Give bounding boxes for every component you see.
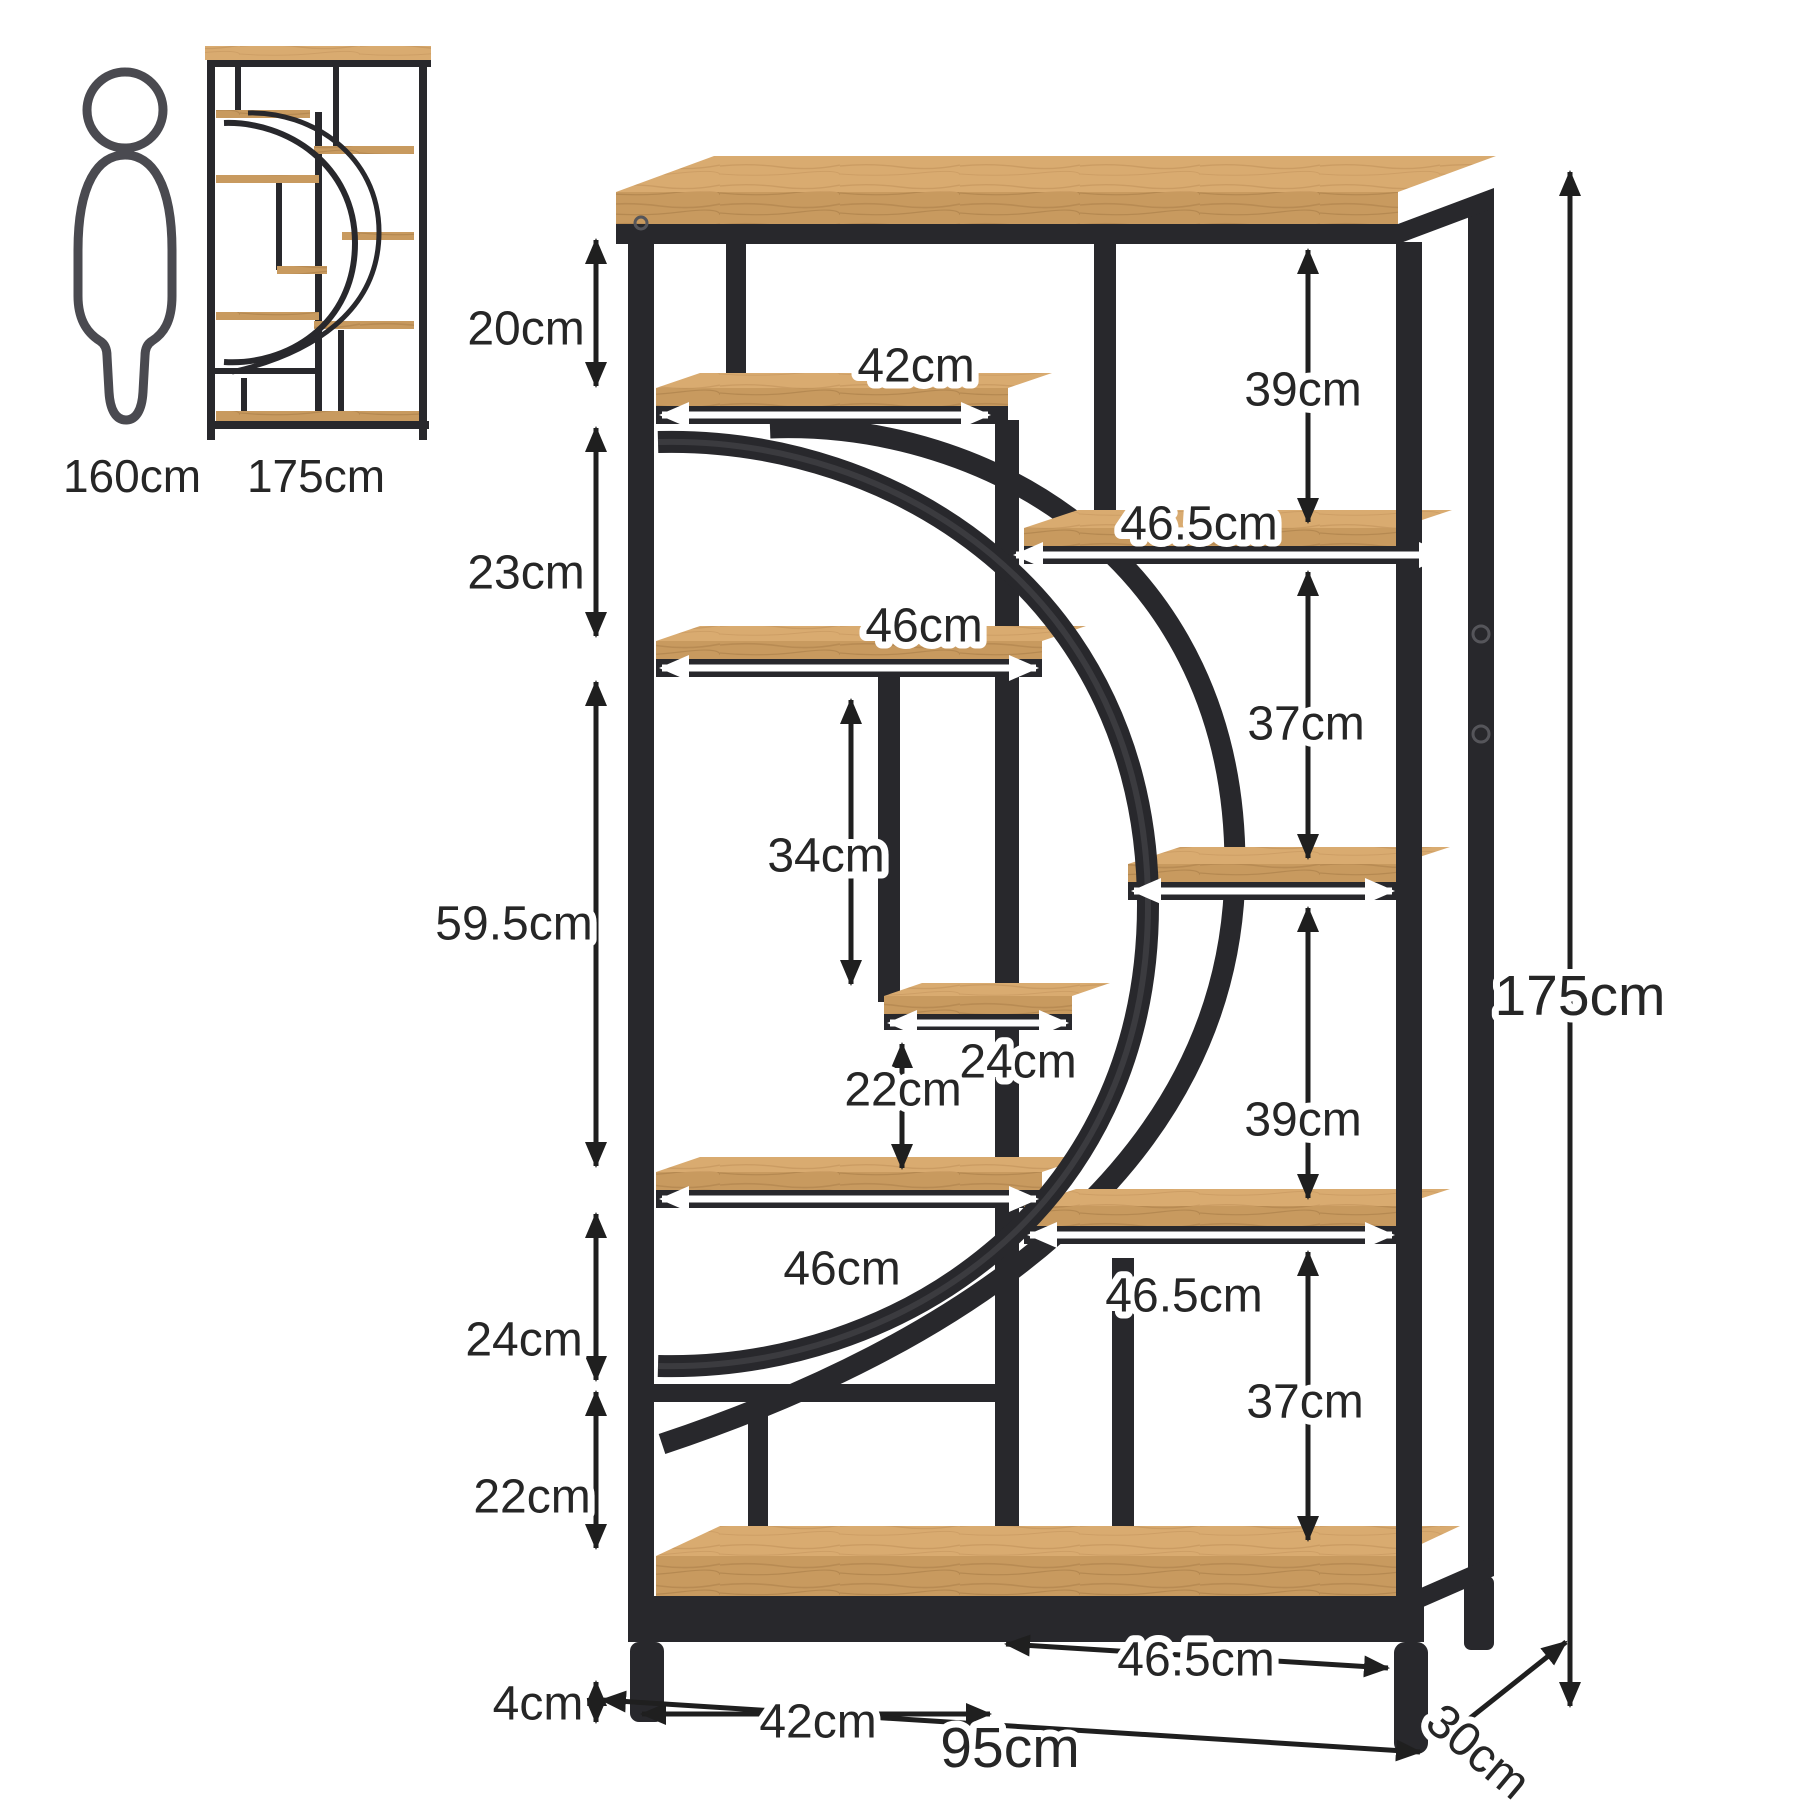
- dim-label-shelf-c: 46cm: [783, 1243, 900, 1296]
- back-right-post: [1468, 204, 1494, 1576]
- front-left-foot: [630, 1642, 664, 1722]
- post-top-right: [1094, 244, 1116, 530]
- dim-label-height-total: 175cm: [1494, 964, 1665, 1028]
- dim-label-width-total: 95cm: [940, 1716, 1079, 1780]
- post-top-left: [726, 244, 746, 390]
- dim-label-gap-5: 22cm: [473, 1471, 590, 1524]
- dim-label-r-37a: 37cm: [1247, 698, 1364, 751]
- dim-label-gap-4: 24cm: [465, 1314, 582, 1367]
- dim-label-shelf-a: 42cm: [857, 340, 974, 393]
- thumbnail-height-label: 175cm: [247, 450, 385, 502]
- dim-label-shelf-b: 46cm: [865, 600, 982, 653]
- dim-label-r-37b: 37cm: [1246, 1376, 1363, 1429]
- dim-label-r-465a: 46.5cm: [1120, 498, 1277, 551]
- bookshelf-thumbnail: [205, 46, 431, 440]
- top-board-top: [616, 156, 1496, 192]
- person-icon: [78, 72, 172, 420]
- dim-label-r-465b: 46.5cm: [1105, 1270, 1262, 1323]
- front-right-post: [1396, 242, 1422, 1596]
- dim-label-v-34: 34cm: [767, 830, 884, 883]
- dim-label-gap-top: 20cm: [467, 303, 584, 356]
- dim-label-gap-3: 59.5cm: [435, 898, 592, 951]
- front-left-post: [628, 242, 654, 1596]
- shelf-bottom: [628, 1526, 1460, 1642]
- dim-label-bay-left: 42cm: [759, 1696, 876, 1749]
- dim-label-feet: 4cm: [493, 1678, 584, 1731]
- dim-label-r-39b: 39cm: [1244, 1094, 1361, 1147]
- dim-label-shelf-small: 24cm: [959, 1036, 1076, 1089]
- dimension-diagram-svg: 20cm 23cm 59.5cm 24cm 22cm 4cm 42cm 39cm…: [0, 0, 1800, 1800]
- rail-lower-left: [654, 1384, 1000, 1402]
- dim-label-v-22: 22cm: [844, 1064, 961, 1117]
- person-height-label: 160cm: [63, 450, 201, 502]
- top-rail: [616, 224, 1398, 244]
- dim-label-r-39a: 39cm: [1244, 364, 1361, 417]
- dim-label-bay-right: 46.5cm: [1117, 1634, 1274, 1687]
- main-bookshelf: [616, 156, 1496, 1754]
- dimension-diagram-page: 20cm 23cm 59.5cm 24cm 22cm 4cm 42cm 39cm…: [0, 0, 1800, 1800]
- top-board-front: [616, 192, 1398, 224]
- dim-label-gap-2: 23cm: [467, 547, 584, 600]
